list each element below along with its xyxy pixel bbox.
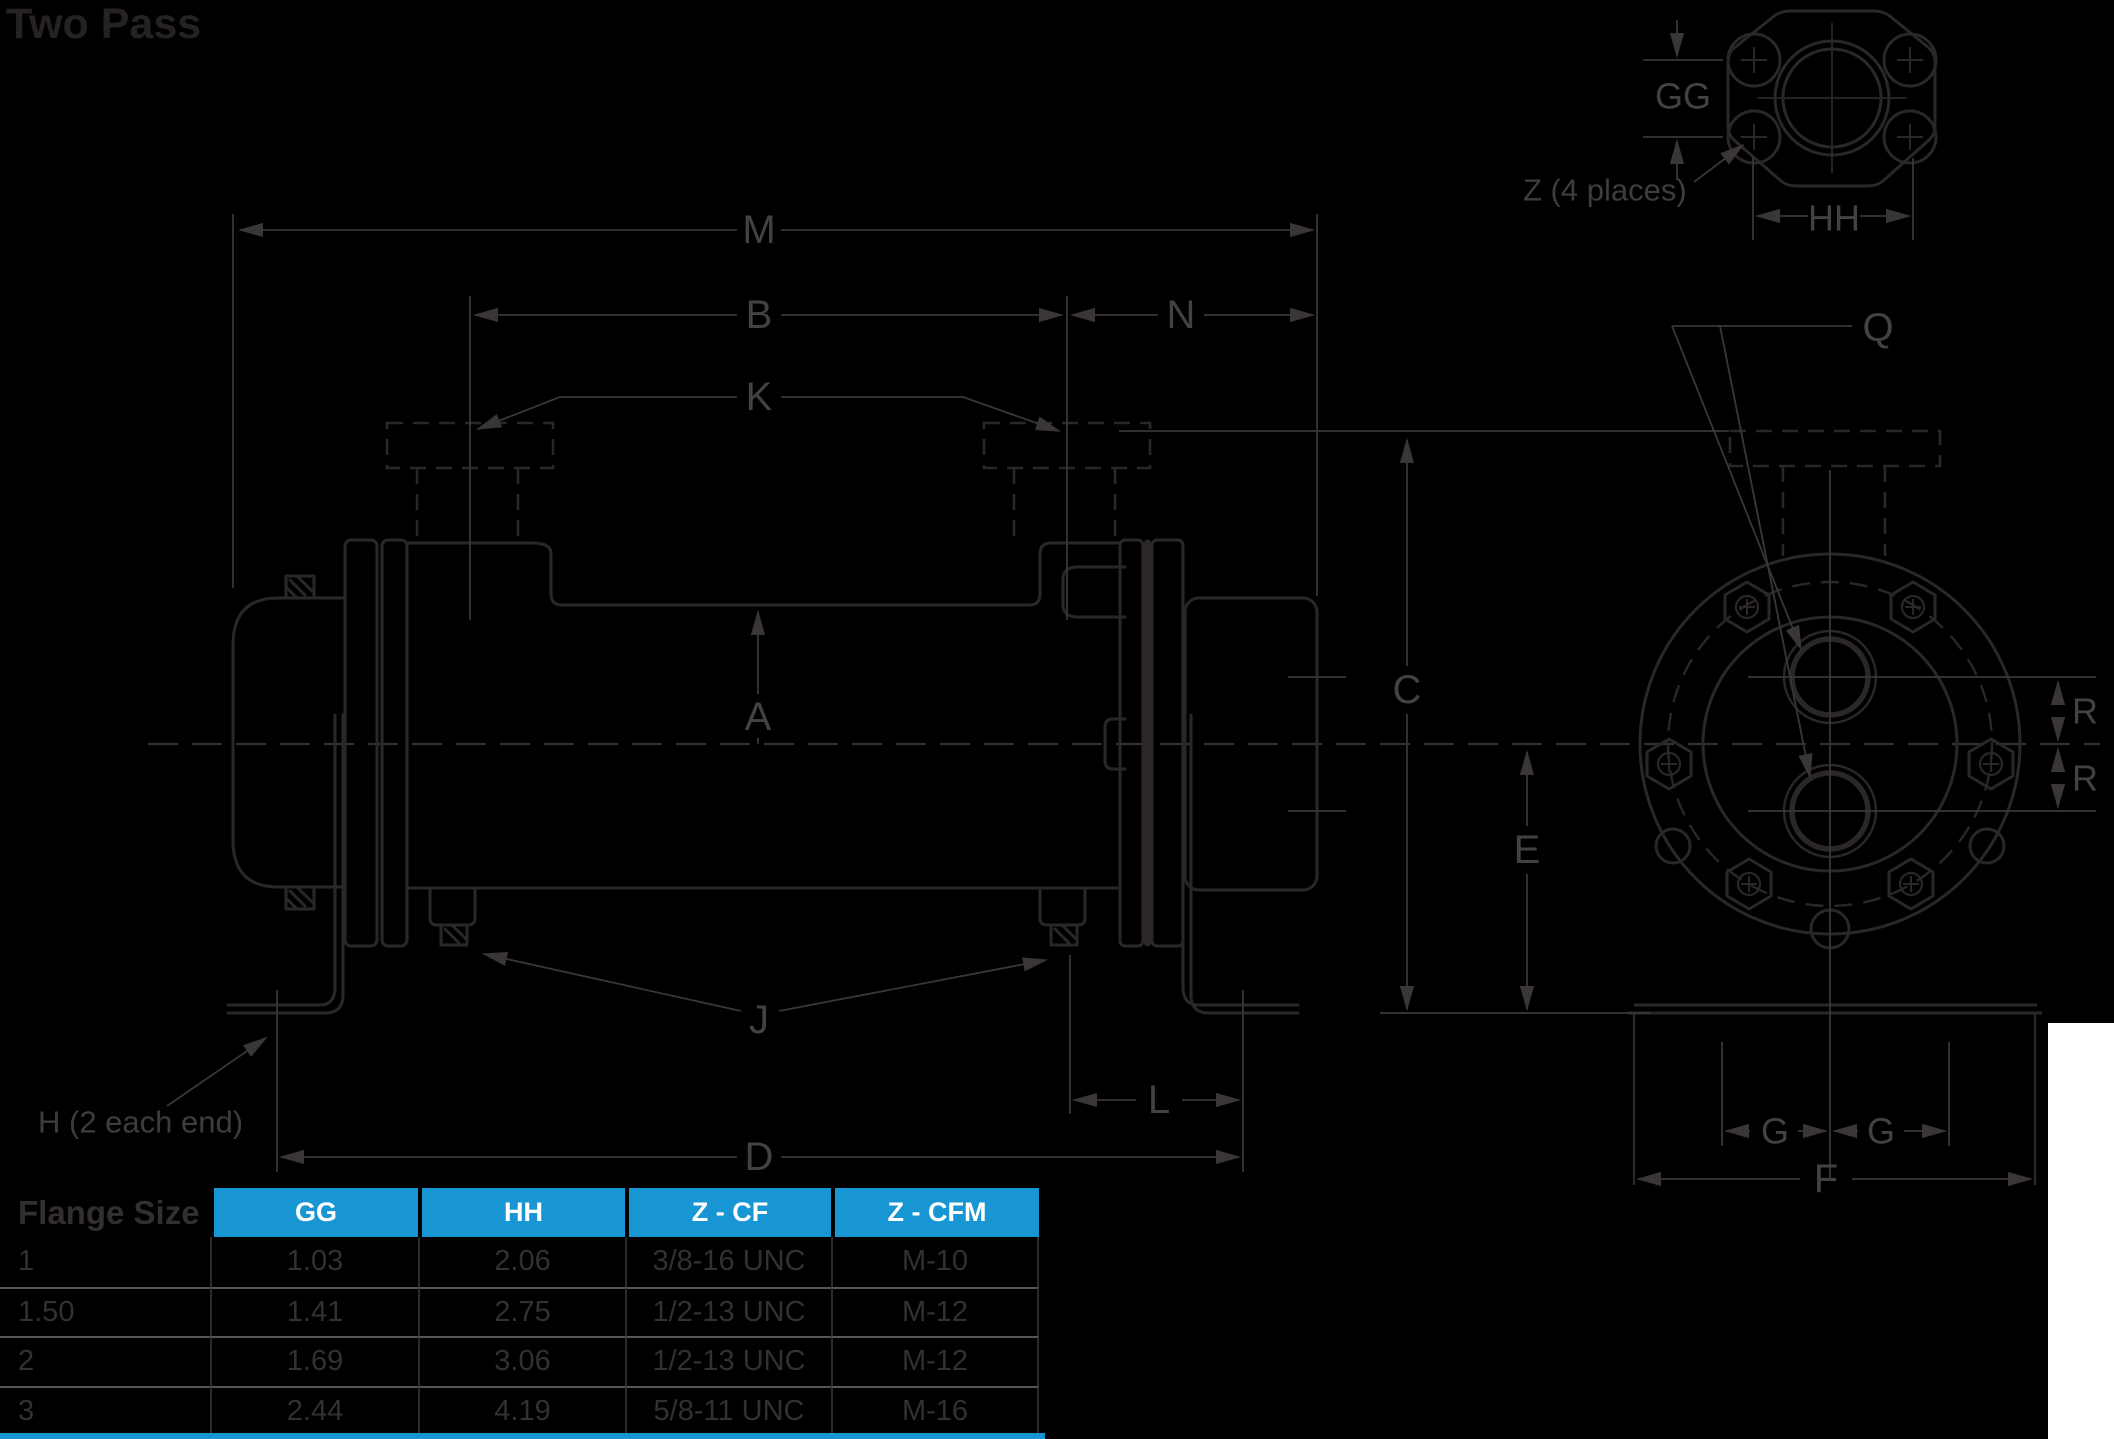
dim-label-r-upper: R: [2072, 691, 2098, 732]
cell-gg: 1.03: [210, 1237, 418, 1287]
dim-label-f: F: [1814, 1157, 1838, 1201]
col-header-hh: HH: [418, 1188, 625, 1237]
right-foot-bracket: [1183, 715, 1298, 1013]
bonnet-drain-plug: [286, 887, 314, 909]
cell-z-cf: 1/2-13 UNC: [625, 1287, 831, 1337]
page: { "title": "Two Pass", "colors": { "back…: [0, 0, 2114, 1439]
left-foot-bracket: [228, 715, 343, 1013]
white-artifact-patch: [2048, 1023, 2114, 1439]
right-shell-drain-boss: [1040, 888, 1085, 945]
vent-plug: [286, 576, 314, 598]
dim-label-m: M: [742, 208, 775, 252]
table-bottom-accent-bar: [0, 1433, 1045, 1439]
table-row: 3 2.44 4.19 5/8-11 UNC M-16: [0, 1386, 1045, 1436]
cell-z-cfm: M-12: [831, 1336, 1039, 1386]
dim-label-n: N: [1167, 293, 1196, 337]
col-header-z-cfm: Z - CFM: [831, 1188, 1039, 1237]
note-h-2-each-end: H (2 each end): [38, 1105, 243, 1140]
cell-z-cfm: M-10: [831, 1237, 1039, 1287]
right-top-lug: [1063, 567, 1125, 617]
dim-label-g-right: G: [1867, 1111, 1895, 1152]
cell-hh: 2.75: [418, 1287, 625, 1337]
dim-label-a: A: [745, 695, 772, 739]
flange-table-header-row: Flange Size GG HH Z - CF Z - CFM: [0, 1188, 1045, 1237]
dim-label-c: C: [1393, 668, 1422, 712]
hex-bolt: [1889, 859, 1933, 909]
col-header-gg: GG: [210, 1188, 418, 1237]
cell-flange-size: 1.50: [0, 1287, 210, 1337]
dashed-port-pads: [387, 423, 1940, 556]
cell-gg: 1.41: [210, 1287, 418, 1337]
dim-label-b: B: [746, 293, 773, 337]
table-row: 1 1.03 2.06 3/8-16 UNC M-10: [0, 1237, 1045, 1287]
dim-label-q: Q: [1862, 306, 1893, 350]
left-bonnet: [233, 598, 345, 887]
hex-bolt: [1891, 582, 1935, 632]
col-header-z-cf: Z - CF: [625, 1188, 831, 1237]
cell-z-cfm: M-16: [831, 1386, 1039, 1436]
cell-flange-size: 3: [0, 1386, 210, 1436]
cell-flange-size: 2: [0, 1336, 210, 1386]
dim-label-g-left: G: [1761, 1111, 1789, 1152]
cell-z-cf: 5/8-11 UNC: [625, 1386, 831, 1436]
hex-bolt: [1725, 582, 1769, 632]
cell-z-cfm: M-12: [831, 1287, 1039, 1337]
note-z-4-places: Z (4 places): [1523, 173, 1687, 208]
cell-hh: 3.06: [418, 1336, 625, 1386]
col-header-flange-size: Flange Size: [0, 1188, 210, 1237]
dim-label-gg: GG: [1655, 76, 1711, 117]
cell-z-cf: 3/8-16 UNC: [625, 1237, 831, 1287]
cell-flange-size: 1: [0, 1237, 210, 1287]
table-row: 2 1.69 3.06 1/2-13 UNC M-12: [0, 1336, 1045, 1386]
flange-centerlines: [1757, 23, 1907, 173]
flange-size-table: Flange Size GG HH Z - CF Z - CFM 1 1.03 …: [0, 1188, 1045, 1435]
side-view: [228, 540, 1317, 1013]
dim-label-d: D: [745, 1135, 774, 1179]
dim-label-j: J: [749, 998, 769, 1042]
shell-top-profile: [407, 543, 1120, 605]
dim-label-l: L: [1148, 1078, 1170, 1122]
dim-label-r-lower: R: [2072, 758, 2098, 799]
left-shell-drain-boss: [430, 888, 475, 945]
cell-gg: 1.69: [210, 1336, 418, 1386]
flange-detail: [1728, 11, 1936, 186]
dim-label-k: K: [746, 375, 773, 419]
dim-label-hh: HH: [1808, 198, 1860, 239]
cell-hh: 2.06: [418, 1237, 625, 1287]
cell-hh: 4.19: [418, 1386, 625, 1436]
table-row: 1.50 1.41 2.75 1/2-13 UNC M-12: [0, 1287, 1045, 1337]
hex-bolt: [1727, 859, 1771, 909]
flange-tab-hole: [1656, 829, 1690, 863]
dim-label-e: E: [1514, 828, 1541, 872]
end-view: [1628, 554, 2042, 1185]
cell-gg: 2.44: [210, 1386, 418, 1436]
flange-tab-hole: [1970, 829, 2004, 863]
cell-z-cf: 1/2-13 UNC: [625, 1336, 831, 1386]
